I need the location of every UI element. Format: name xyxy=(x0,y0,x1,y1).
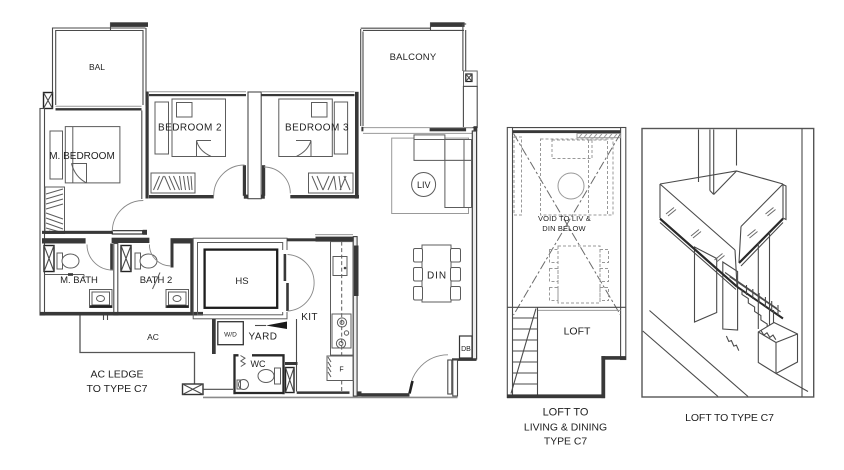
svg-text:AC: AC xyxy=(147,332,159,342)
svg-text:BEDROOM 3: BEDROOM 3 xyxy=(285,123,349,134)
svg-text:YARD: YARD xyxy=(248,332,277,343)
svg-text:LOFT: LOFT xyxy=(564,326,591,338)
svg-text:DIN: DIN xyxy=(427,271,447,282)
svg-text:BEDROOM 2: BEDROOM 2 xyxy=(158,123,222,134)
svg-text:BALCONY: BALCONY xyxy=(390,52,437,63)
svg-text:KIT: KIT xyxy=(301,312,317,323)
svg-text:M. BATH: M. BATH xyxy=(60,275,98,286)
svg-text:AC LEDGE: AC LEDGE xyxy=(90,369,143,381)
svg-text:DB: DB xyxy=(461,346,471,353)
svg-text:LIVING & DINING: LIVING & DINING xyxy=(524,423,607,434)
svg-text:BAL: BAL xyxy=(89,62,105,72)
svg-text:F: F xyxy=(339,367,343,374)
svg-text:LOFT TO TYPE C7: LOFT TO TYPE C7 xyxy=(685,412,774,424)
svg-text:HS: HS xyxy=(235,276,248,287)
svg-text:TO TYPE C7: TO TYPE C7 xyxy=(87,383,148,395)
svg-text:DIN BELOW: DIN BELOW xyxy=(542,224,586,233)
svg-text:WC: WC xyxy=(251,359,266,369)
svg-text:M. BEDROOM: M. BEDROOM xyxy=(49,151,115,162)
svg-text:LIV: LIV xyxy=(417,180,431,190)
svg-text:TYPE C7: TYPE C7 xyxy=(544,437,588,448)
svg-text:LOFT TO: LOFT TO xyxy=(543,407,589,419)
svg-text:VOID TO LIV &: VOID TO LIV & xyxy=(538,214,591,223)
svg-text:BATH 2: BATH 2 xyxy=(140,275,173,286)
svg-text:W/D: W/D xyxy=(224,332,237,339)
